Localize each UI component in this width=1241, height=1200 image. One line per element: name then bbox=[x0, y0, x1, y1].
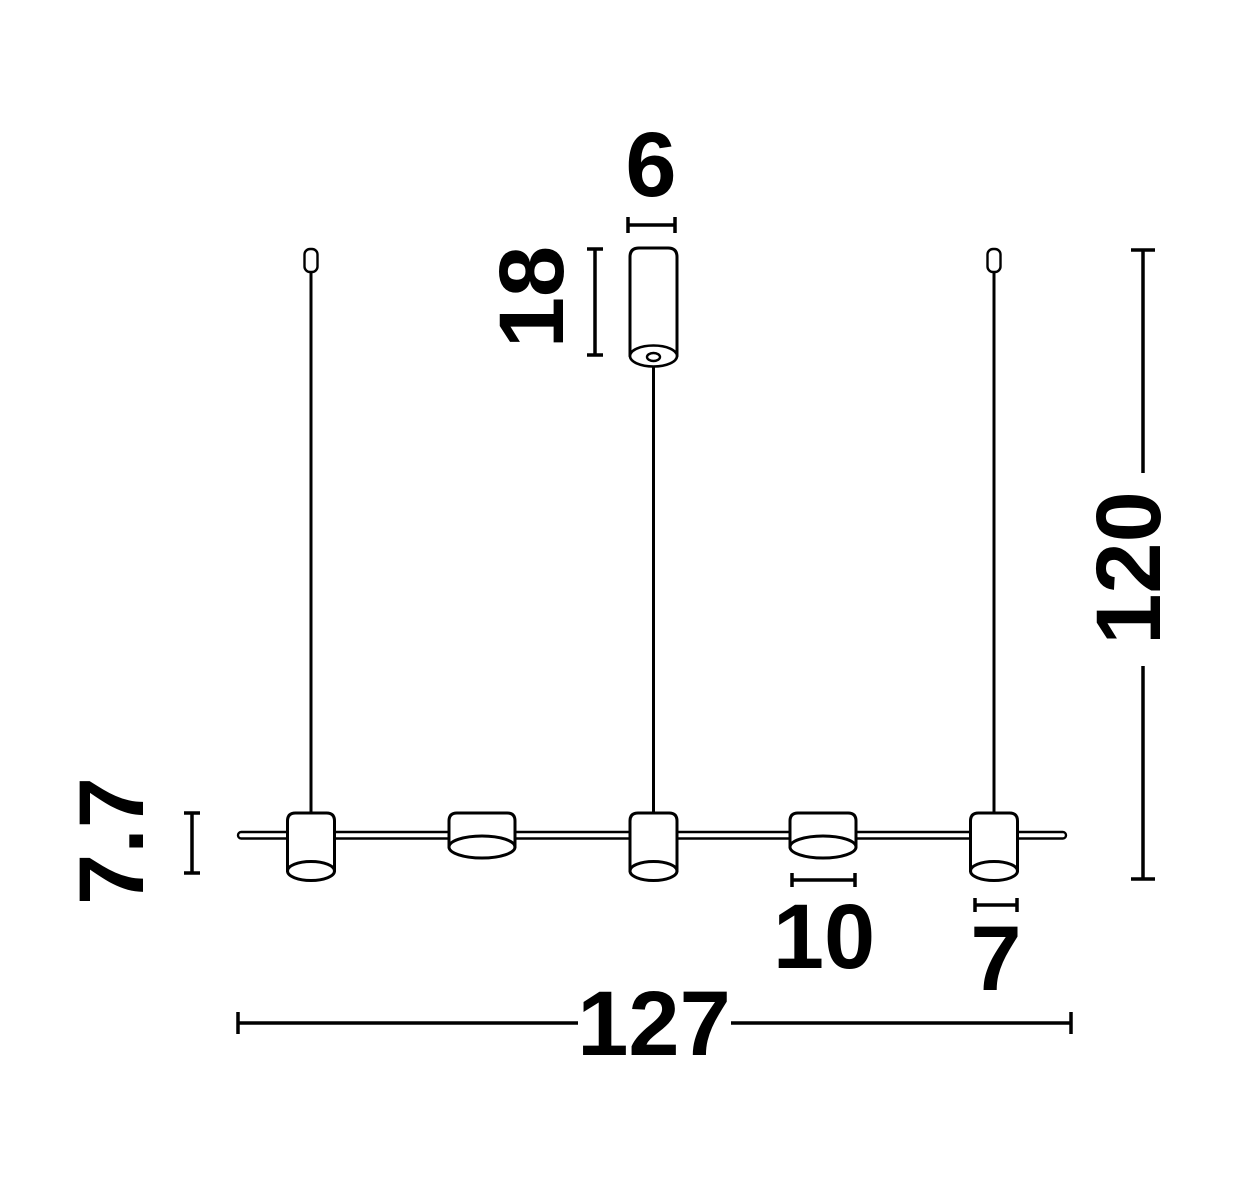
shade-1-cylinder bbox=[288, 813, 335, 881]
canopy-cable-hole bbox=[647, 353, 660, 361]
canopy-body bbox=[630, 248, 677, 356]
dim-line-shade-height bbox=[184, 813, 200, 873]
shade-1-bottom bbox=[288, 862, 335, 881]
dim-label-drop-height: 120 bbox=[1078, 491, 1180, 645]
dim-canopy-height: 18 bbox=[481, 246, 603, 355]
dim-line-wide-shade-diameter bbox=[792, 873, 855, 887]
dim-label-shade-height: 7.7 bbox=[61, 777, 163, 905]
shade-5-cylinder bbox=[971, 813, 1018, 881]
shade-3-bottom bbox=[630, 862, 677, 881]
dim-drop-height: 120 bbox=[1078, 250, 1180, 879]
dim-narrow-shade-diameter: 7 bbox=[970, 898, 1021, 1010]
dim-label-total-width: 127 bbox=[577, 973, 731, 1075]
dim-shade-height: 7.7 bbox=[61, 777, 200, 905]
connector-left bbox=[305, 249, 318, 272]
dim-canopy-diameter: 6 bbox=[625, 114, 676, 233]
shade-5-bottom bbox=[971, 862, 1018, 881]
shade-2-bottom bbox=[449, 836, 515, 858]
dimension-drawing-canvas: 6 18 120 7.7 10 7 127 bbox=[0, 0, 1241, 1200]
dim-wide-shade-diameter: 10 bbox=[773, 873, 875, 988]
dim-line-canopy-height bbox=[587, 249, 603, 355]
connector-right bbox=[988, 249, 1001, 272]
dim-label-canopy-height: 18 bbox=[481, 246, 583, 348]
shade-2-drum bbox=[449, 813, 515, 858]
dim-line-canopy-diameter bbox=[628, 217, 675, 233]
pendant-lamp-dimension-drawing: 6 18 120 7.7 10 7 127 bbox=[0, 0, 1241, 1200]
dim-label-narrow-shade-diameter: 7 bbox=[970, 908, 1021, 1010]
lamp-shades bbox=[288, 813, 1018, 881]
dim-total-width: 127 bbox=[238, 973, 1071, 1075]
shade-3-cylinder bbox=[630, 813, 677, 881]
dim-label-wide-shade-diameter: 10 bbox=[773, 886, 875, 988]
dim-label-canopy-diameter: 6 bbox=[625, 114, 676, 216]
shade-4-bottom bbox=[790, 836, 856, 858]
ceiling-canopy bbox=[630, 248, 677, 367]
shade-4-drum bbox=[790, 813, 856, 858]
